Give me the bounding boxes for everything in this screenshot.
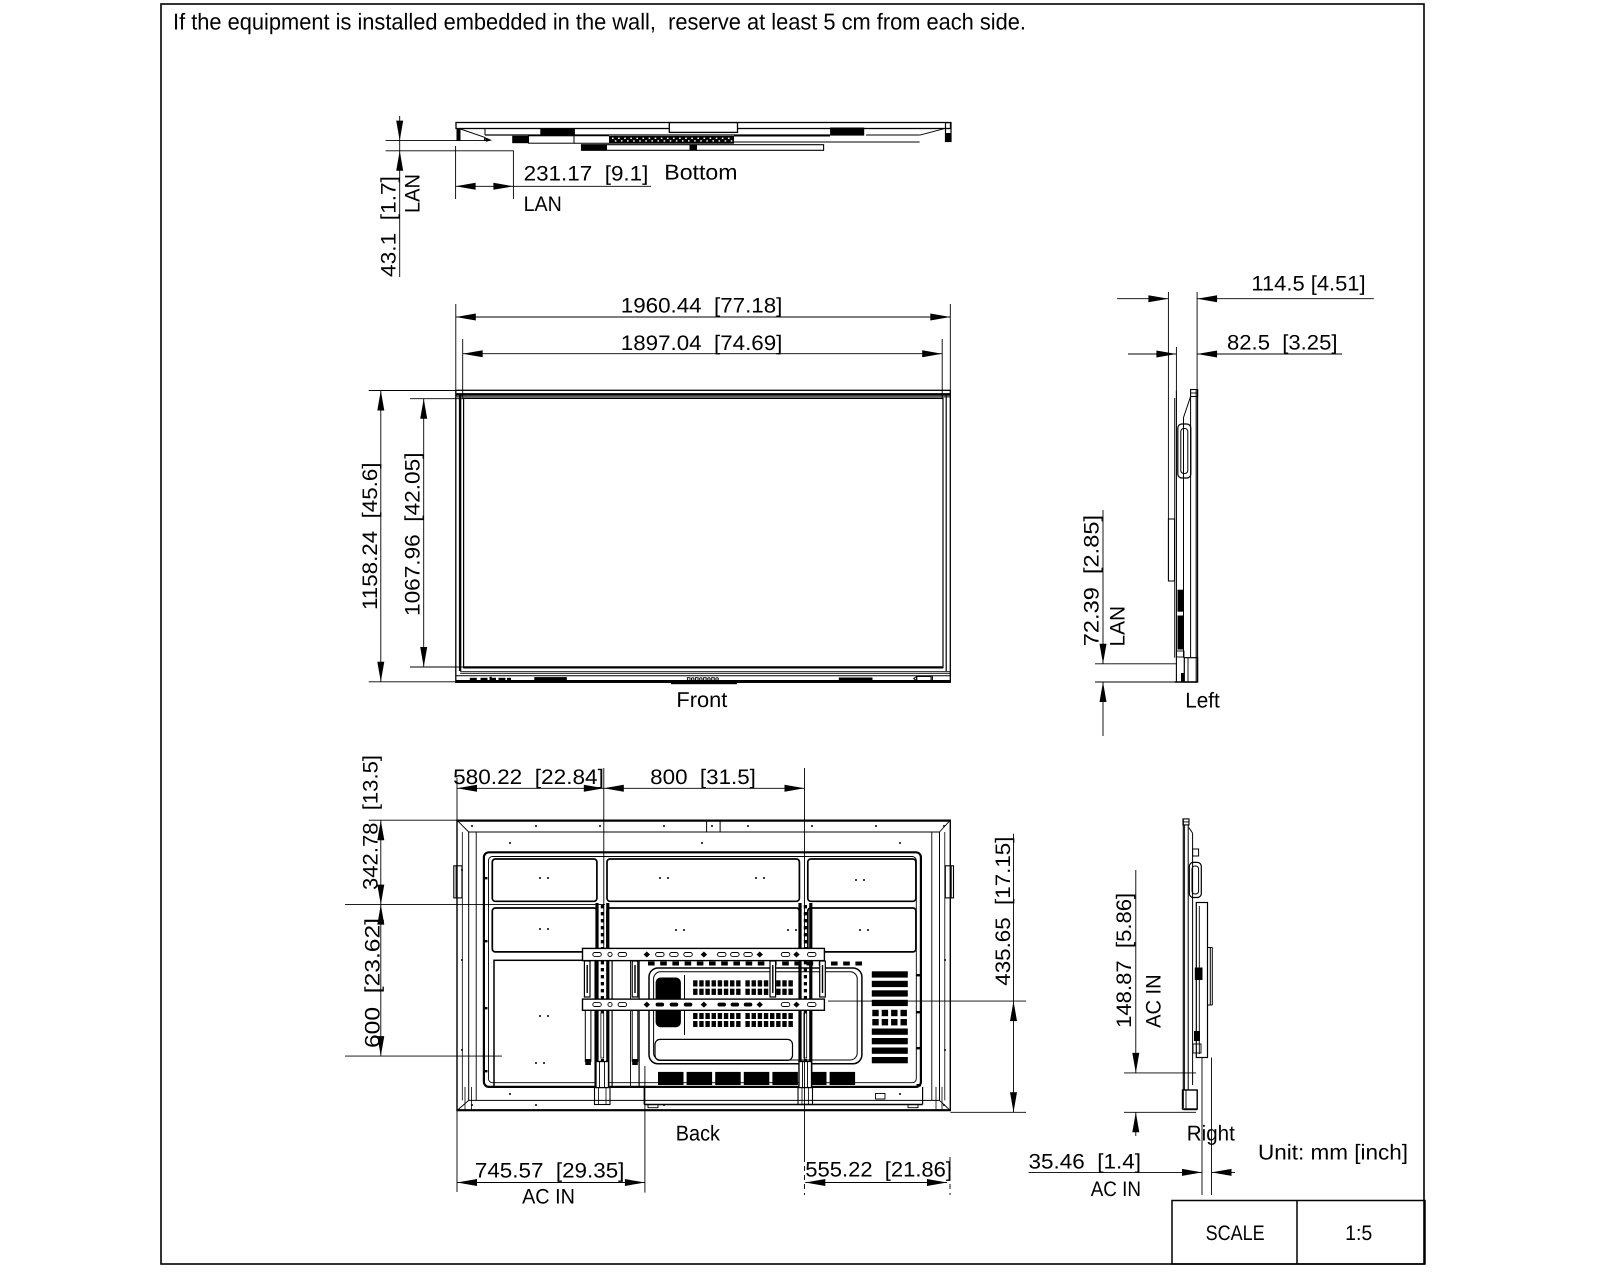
svg-text:231.17 [9.1]: 231.17 [9.1]	[524, 162, 649, 185]
svg-text:LAN: LAN	[524, 193, 562, 216]
svg-text:Unit: mm [inch]: Unit: mm [inch]	[1258, 1141, 1408, 1165]
svg-text:745.57 [29.35]: 745.57 [29.35]	[475, 1160, 625, 1183]
svg-text:580.22 [22.84]: 580.22 [22.84]	[453, 766, 604, 789]
svg-text:148.87 [5.86]: 148.87 [5.86]	[1113, 893, 1136, 1028]
svg-text:SCALE: SCALE	[1206, 1222, 1265, 1245]
svg-text:1960.44 [77.18]: 1960.44 [77.18]	[621, 295, 783, 318]
svg-text:35.46 [1.4]: 35.46 [1.4]	[1029, 1151, 1142, 1174]
svg-text:555.22 [21.86]: 555.22 [21.86]	[805, 1158, 952, 1181]
svg-text:Back: Back	[676, 1121, 720, 1145]
svg-text:1067.96 [42.05]: 1067.96 [42.05]	[402, 453, 425, 617]
svg-text:114.5 [4.51]: 114.5 [4.51]	[1251, 272, 1365, 295]
svg-text:LAN: LAN	[1107, 606, 1130, 647]
svg-text:AC IN: AC IN	[1091, 1178, 1141, 1201]
svg-text:1897.04 [74.69]: 1897.04 [74.69]	[621, 332, 783, 355]
svg-text:Bottom: Bottom	[664, 161, 737, 185]
svg-text:800 [31.5]: 800 [31.5]	[650, 766, 756, 789]
svg-text:342.78 [13.5]: 342.78 [13.5]	[360, 755, 383, 890]
svg-text:600 [23.62]: 600 [23.62]	[362, 918, 385, 1048]
svg-text:AC IN: AC IN	[1143, 974, 1166, 1028]
svg-text:72.39 [2.85]: 72.39 [2.85]	[1081, 515, 1104, 646]
svg-text:Left: Left	[1185, 688, 1220, 712]
svg-text:435.65 [17.15]: 435.65 [17.15]	[992, 837, 1015, 986]
svg-text:Front: Front	[676, 688, 727, 712]
svg-text:LAN: LAN	[402, 174, 425, 213]
svg-text:If the equipment is installed: If the equipment is installed embedded i…	[173, 9, 1026, 35]
svg-text:43.1 [1.7]: 43.1 [1.7]	[378, 176, 401, 277]
svg-text:1158.24 [45.6]: 1158.24 [45.6]	[359, 463, 382, 611]
svg-text:82.5 [3.25]: 82.5 [3.25]	[1227, 331, 1338, 354]
svg-text:AC IN: AC IN	[522, 1186, 575, 1209]
svg-text:1:5: 1:5	[1345, 1222, 1372, 1245]
svg-text:Right: Right	[1187, 1122, 1235, 1146]
